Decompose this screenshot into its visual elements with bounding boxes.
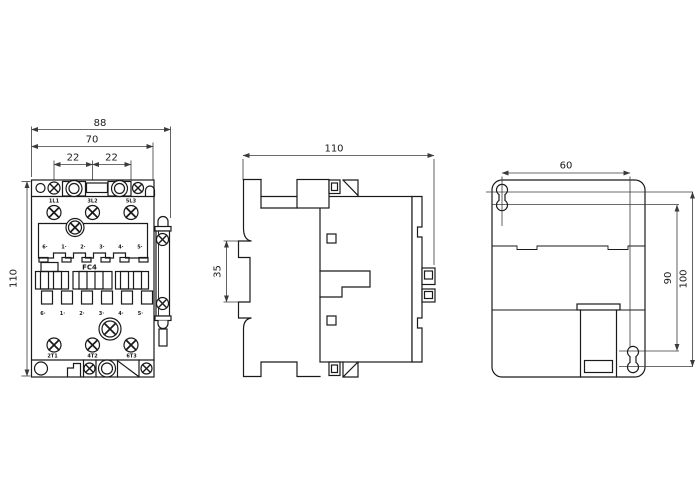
dim-label-depth: 110 xyxy=(324,144,343,155)
contactor-body-side xyxy=(320,197,412,363)
dim-label-hole-pitch-height: 90 xyxy=(663,272,674,285)
drawing-canvas: 88 70 22 22 110 1L1 3L2 5L3 xyxy=(0,0,700,500)
terminal-screw xyxy=(86,338,100,352)
terminal-label-1L1: 1L1 xyxy=(49,199,60,205)
rear-view: 60 90 100 xyxy=(486,161,693,378)
bottom-diagonal-piece xyxy=(343,362,358,377)
mid-number: 2· xyxy=(79,311,84,317)
mid-number: 5· xyxy=(138,311,143,317)
panel-screw xyxy=(66,219,84,237)
side-view: 110 35 xyxy=(213,144,436,378)
dim-label-body-width: 70 xyxy=(86,135,99,146)
bottom-clip xyxy=(329,362,340,376)
coil-number: 4· xyxy=(118,245,123,251)
top-clip xyxy=(329,180,340,194)
attachment-foot xyxy=(159,329,167,346)
front-view: 88 70 22 22 110 1L1 3L2 5L3 xyxy=(9,118,172,377)
mid-number: 4· xyxy=(118,311,123,317)
terminal-label-3L2: 3L2 xyxy=(87,199,98,205)
coil-cover-panel xyxy=(39,224,148,259)
contact-opening-inner xyxy=(102,363,113,374)
terminal-label-5L3: 5L3 xyxy=(126,199,137,205)
dim-label-pitch-left: 22 xyxy=(67,153,80,164)
attachment-dome-top xyxy=(158,217,168,227)
mid-number: 6· xyxy=(40,311,45,317)
attachment-dome-bottom xyxy=(158,321,168,329)
terminal-label-4T2: 4T2 xyxy=(87,354,98,360)
dim-label-rail-slot: 35 xyxy=(213,265,224,278)
coil-number: 1· xyxy=(61,245,66,251)
terminal-screw xyxy=(124,338,138,352)
dim-label-hole-pitch-width: 60 xyxy=(560,161,573,172)
terminal-label-2T1: 2T1 xyxy=(47,354,58,360)
device-label: FC4 xyxy=(82,264,97,272)
dim-label-pitch-right: 22 xyxy=(105,153,118,164)
box-cap xyxy=(577,304,620,310)
contactor-body-rear xyxy=(492,180,645,377)
side-attachment xyxy=(155,217,171,347)
coil-number: 5· xyxy=(137,245,142,251)
dim-label-overall-height: 110 xyxy=(9,269,20,288)
terminal-screw xyxy=(124,206,138,220)
mid-number: 1· xyxy=(60,311,65,317)
phillips-screw xyxy=(141,363,152,374)
contactor-dimensional-drawing: 88 70 22 22 110 1L1 3L2 5L3 xyxy=(0,0,700,500)
center-screw xyxy=(99,318,121,340)
phillips-screw xyxy=(84,363,95,374)
terminal-label-6T3: 6T3 xyxy=(126,354,137,360)
phillips-screw xyxy=(157,234,169,246)
mid-number: 3· xyxy=(99,311,104,317)
upper-block xyxy=(297,180,329,209)
phillips-screw xyxy=(157,298,169,310)
coil-number: 6· xyxy=(42,245,47,251)
phillips-screw xyxy=(48,182,60,194)
contact-opening-inner xyxy=(115,184,125,194)
rear-panel-side xyxy=(412,197,422,363)
coil-number: 2· xyxy=(80,245,85,251)
terminal-screw xyxy=(86,206,100,220)
din-clip-profile xyxy=(239,180,321,377)
strip-hole xyxy=(35,362,48,375)
terminal-screw xyxy=(47,338,61,352)
dim-label-overall-width: 88 xyxy=(94,118,107,129)
strip-hole xyxy=(36,184,45,193)
top-diagonal-piece xyxy=(343,180,358,196)
attachment-plate-bottom xyxy=(155,316,171,321)
terminal-screw xyxy=(47,206,61,220)
coil-number: 3· xyxy=(99,245,104,251)
attachment-plate-top xyxy=(155,227,171,232)
contact-opening-inner xyxy=(69,184,79,194)
phillips-screw xyxy=(133,183,144,194)
dim-label-mounting-height: 100 xyxy=(679,269,690,288)
